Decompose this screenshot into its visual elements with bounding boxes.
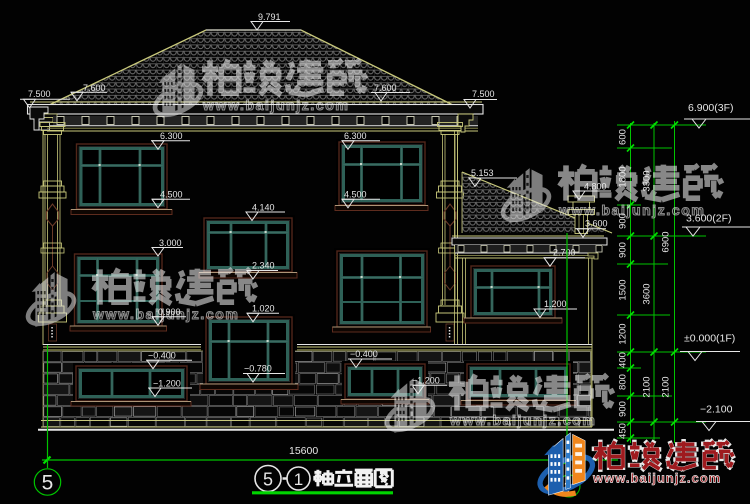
svg-text:7.600: 7.600 [83,83,106,93]
svg-text:www.baijunjz.com: www.baijunjz.com [592,471,721,486]
svg-text:−0.780: −0.780 [244,364,272,374]
svg-text:1.020: 1.020 [252,304,275,314]
svg-text:5: 5 [263,470,273,490]
svg-text:−0.400: −0.400 [148,351,176,361]
svg-text:7.500: 7.500 [472,89,495,99]
svg-text:1200: 1200 [618,323,629,344]
svg-text:www.baijunjz.com: www.baijunjz.com [92,306,239,322]
svg-text:5.153: 5.153 [471,168,494,178]
svg-text:±0.000(1F): ±0.000(1F) [684,333,735,345]
svg-text:2.340: 2.340 [252,261,275,271]
svg-text:3600: 3600 [642,283,653,304]
svg-text:900: 900 [618,401,629,417]
svg-text:900: 900 [618,242,629,258]
svg-text:www.baijunjz.com: www.baijunjz.com [202,97,349,113]
svg-text:800: 800 [618,374,629,390]
svg-text:7.600: 7.600 [374,83,397,93]
svg-text:2.700: 2.700 [553,248,576,258]
svg-text:4.140: 4.140 [252,203,275,213]
svg-text:www.baijunjz.com: www.baijunjz.com [558,202,705,218]
svg-text:450: 450 [618,423,629,439]
svg-text:5: 5 [42,472,54,495]
svg-text:6.300: 6.300 [344,131,367,141]
svg-text:2100: 2100 [642,376,653,397]
svg-text:1500: 1500 [618,279,629,300]
svg-text:1.200: 1.200 [544,299,567,309]
svg-text:600: 600 [618,129,629,145]
svg-text:15600: 15600 [289,445,318,457]
svg-text:−1.200: −1.200 [153,379,181,389]
svg-text:3.000: 3.000 [159,238,182,248]
svg-text:9.791: 9.791 [258,12,281,22]
svg-text:www.baijunjz.com: www.baijunjz.com [449,412,596,428]
svg-text:3.600: 3.600 [585,219,608,229]
svg-text:−2.100: −2.100 [700,404,733,416]
svg-text:−0.400: −0.400 [350,349,378,359]
svg-text:7.500: 7.500 [28,89,51,99]
svg-text:4.500: 4.500 [160,190,183,200]
svg-text:6.300: 6.300 [160,131,183,141]
svg-text:6.900(3F): 6.900(3F) [688,102,734,114]
svg-text:4.500: 4.500 [344,190,367,200]
svg-text:1: 1 [294,470,303,489]
svg-text:400: 400 [618,352,629,368]
svg-text:6900: 6900 [661,231,672,252]
svg-text:2100: 2100 [661,376,672,397]
